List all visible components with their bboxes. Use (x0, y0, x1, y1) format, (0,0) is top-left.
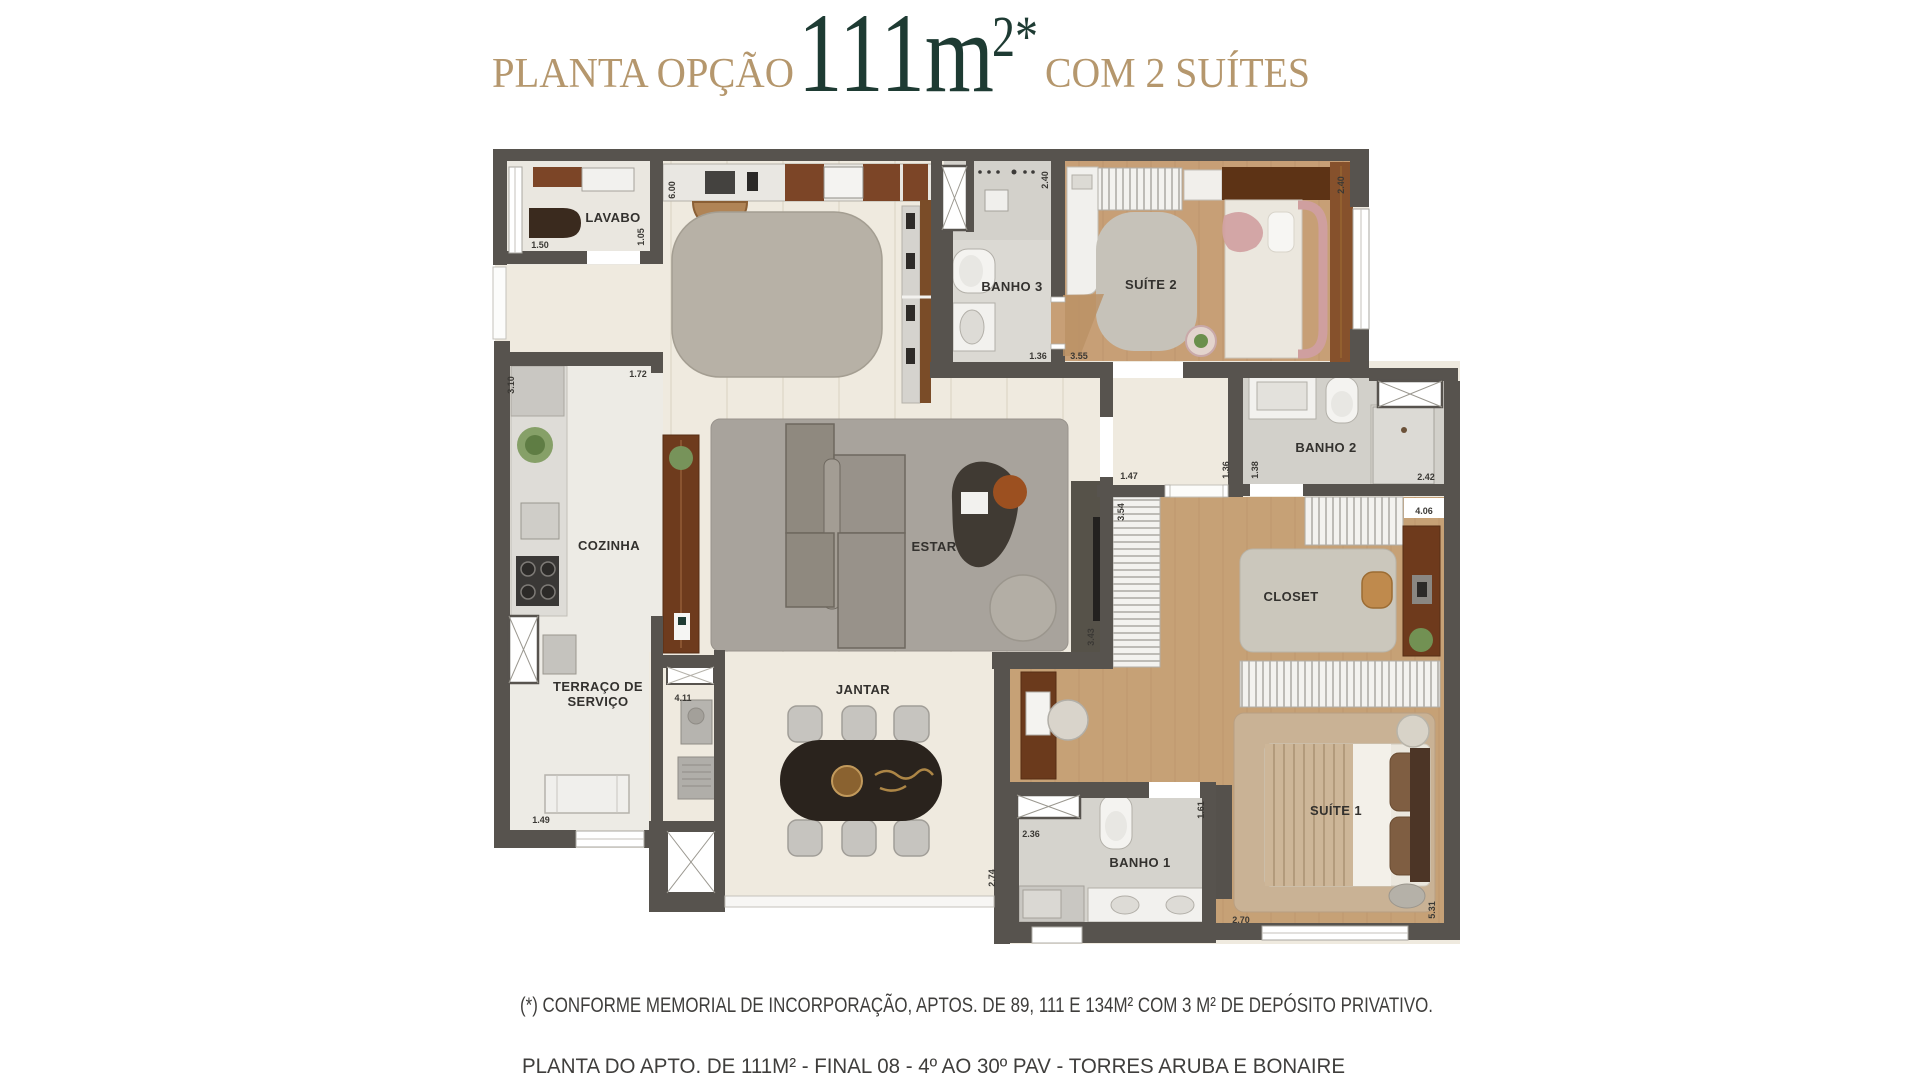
svg-text:TERRAÇO DE: TERRAÇO DE (553, 679, 643, 694)
svg-text:SUÍTE 2: SUÍTE 2 (1125, 277, 1177, 292)
svg-text:1.36: 1.36 (1029, 351, 1047, 361)
svg-text:ESTAR: ESTAR (911, 539, 956, 554)
svg-text:1.50: 1.50 (531, 240, 549, 250)
svg-text:111m: 111m (798, 0, 994, 116)
svg-text:COM 2 SUÍTES: COM 2 SUÍTES (1045, 50, 1310, 97)
svg-text:2.42: 2.42 (1417, 472, 1435, 482)
svg-text:2.40: 2.40 (1336, 176, 1346, 194)
svg-text:1.49: 1.49 (532, 815, 550, 825)
svg-text:4.06: 4.06 (1415, 506, 1433, 516)
svg-text:2.70: 2.70 (1232, 915, 1250, 925)
svg-text:BANHO 1: BANHO 1 (1109, 855, 1170, 870)
svg-text:4.11: 4.11 (674, 693, 691, 703)
svg-text:BANHO 2: BANHO 2 (1295, 440, 1356, 455)
svg-text:2*: 2* (992, 4, 1038, 69)
svg-text:2.36: 2.36 (1022, 829, 1040, 839)
svg-text:SUÍTE 1: SUÍTE 1 (1310, 803, 1362, 818)
svg-text:1.05: 1.05 (636, 228, 646, 246)
svg-text:1.47: 1.47 (1120, 471, 1138, 481)
svg-text:1.72: 1.72 (629, 369, 647, 379)
svg-text:2.40: 2.40 (1040, 171, 1050, 189)
svg-text:3.54: 3.54 (1116, 503, 1126, 521)
svg-text:3.43: 3.43 (1086, 628, 1096, 646)
svg-text:BANHO 3: BANHO 3 (981, 279, 1042, 294)
svg-text:1.36: 1.36 (1221, 461, 1231, 479)
svg-text:COZINHA: COZINHA (578, 538, 640, 553)
svg-text:JANTAR: JANTAR (836, 682, 890, 697)
svg-text:CLOSET: CLOSET (1263, 589, 1318, 604)
svg-text:6.00: 6.00 (667, 181, 677, 199)
svg-text:(*) CONFORME MEMORIAL DE INCOR: (*) CONFORME MEMORIAL DE INCORPORAÇÃO, A… (520, 993, 1433, 1017)
svg-text:PLANTA OPÇÃO: PLANTA OPÇÃO (492, 51, 794, 97)
svg-text:5.31: 5.31 (1427, 901, 1437, 919)
svg-text:LAVABO: LAVABO (585, 210, 640, 225)
svg-text:3.10: 3.10 (506, 376, 516, 394)
svg-text:PLANTA DO APTO. DE 111M² - FIN: PLANTA DO APTO. DE 111M² - FINAL 08 - 4º… (522, 1055, 1345, 1078)
svg-text:3.55: 3.55 (1070, 351, 1088, 361)
svg-text:1.38: 1.38 (1250, 461, 1260, 479)
svg-text:SERVIÇO: SERVIÇO (567, 694, 628, 709)
svg-text:2.74: 2.74 (987, 869, 997, 887)
svg-text:1.61: 1.61 (1196, 801, 1206, 819)
